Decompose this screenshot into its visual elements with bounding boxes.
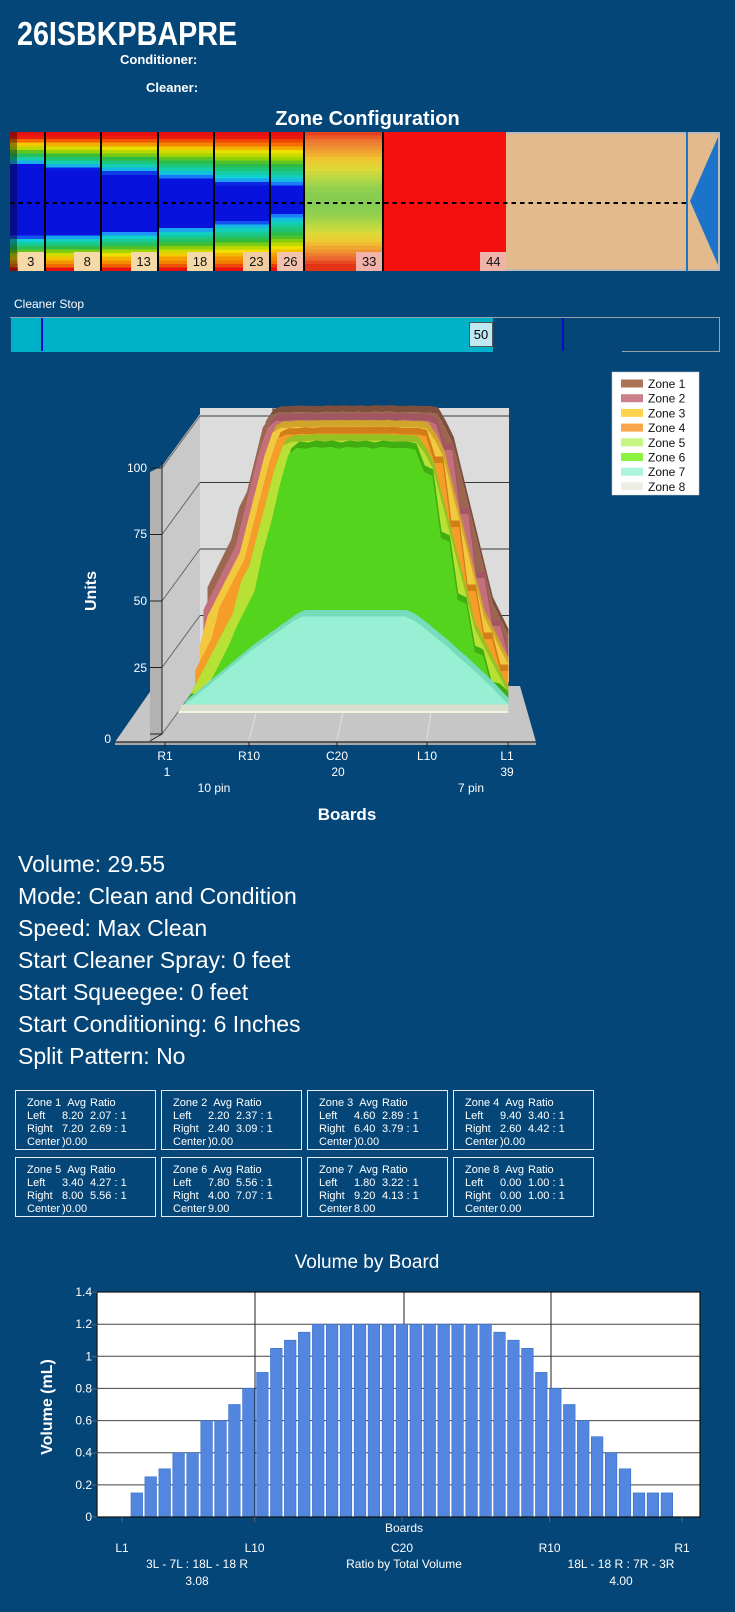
svg-text:C20: C20	[326, 749, 348, 763]
svg-text:R1: R1	[674, 1541, 690, 1555]
svg-text:R10: R10	[539, 1541, 561, 1555]
svg-text:3.08: 3.08	[185, 1574, 209, 1588]
svg-text:1: 1	[85, 1349, 92, 1363]
svg-text:0.8: 0.8	[75, 1381, 92, 1395]
svg-text:20: 20	[331, 765, 345, 779]
svg-text:39: 39	[500, 765, 514, 779]
svg-text:Volume (mL): Volume (mL)	[39, 1359, 56, 1455]
svg-text:0: 0	[104, 732, 111, 746]
svg-text:R10: R10	[238, 749, 260, 763]
svg-text:Zone 1: Zone 1	[648, 377, 686, 391]
svg-text:Zone 3: Zone 3	[648, 406, 686, 420]
svg-text:Zone 5: Zone 5	[648, 436, 686, 450]
svg-text:1.4: 1.4	[75, 1285, 92, 1299]
svg-text:Zone 2: Zone 2	[648, 392, 686, 406]
svg-text:75: 75	[134, 527, 148, 541]
svg-text:0.4: 0.4	[75, 1446, 92, 1460]
svg-text:10 pin: 10 pin	[198, 781, 231, 795]
svg-text:Zone 4: Zone 4	[648, 421, 686, 435]
svg-text:Zone 6: Zone 6	[648, 451, 686, 465]
svg-text:L10: L10	[245, 1541, 265, 1555]
svg-text:Ratio by Total Volume: Ratio by Total Volume	[346, 1557, 462, 1571]
svg-text:Units: Units	[83, 571, 100, 611]
svg-text:Volume by Board: Volume by Board	[295, 1252, 440, 1273]
svg-text:0: 0	[85, 1510, 92, 1524]
svg-text:100: 100	[127, 461, 147, 475]
svg-text:50: 50	[134, 594, 148, 608]
svg-text:0.2: 0.2	[75, 1478, 92, 1492]
svg-text:R1: R1	[157, 749, 173, 763]
svg-text:L1: L1	[500, 749, 514, 763]
svg-text:4.00: 4.00	[609, 1574, 633, 1588]
svg-text:Zone 8: Zone 8	[648, 480, 686, 494]
svg-text:0.6: 0.6	[75, 1414, 92, 1428]
svg-text:L1: L1	[115, 1541, 129, 1555]
svg-text:1.2: 1.2	[75, 1317, 92, 1331]
svg-text:Zone 7: Zone 7	[648, 465, 686, 479]
svg-text:Boards: Boards	[385, 1521, 423, 1535]
svg-text:L10: L10	[417, 749, 437, 763]
svg-text:3L - 7L : 18L - 18 R: 3L - 7L : 18L - 18 R	[146, 1557, 248, 1571]
svg-text:1: 1	[164, 765, 171, 779]
svg-text:7 pin: 7 pin	[458, 781, 484, 795]
svg-text:25: 25	[134, 661, 148, 675]
svg-text:Boards: Boards	[318, 805, 377, 824]
svg-text:18L - 18 R : 7R - 3R: 18L - 18 R : 7R - 3R	[568, 1557, 675, 1571]
svg-text:C20: C20	[391, 1541, 413, 1555]
